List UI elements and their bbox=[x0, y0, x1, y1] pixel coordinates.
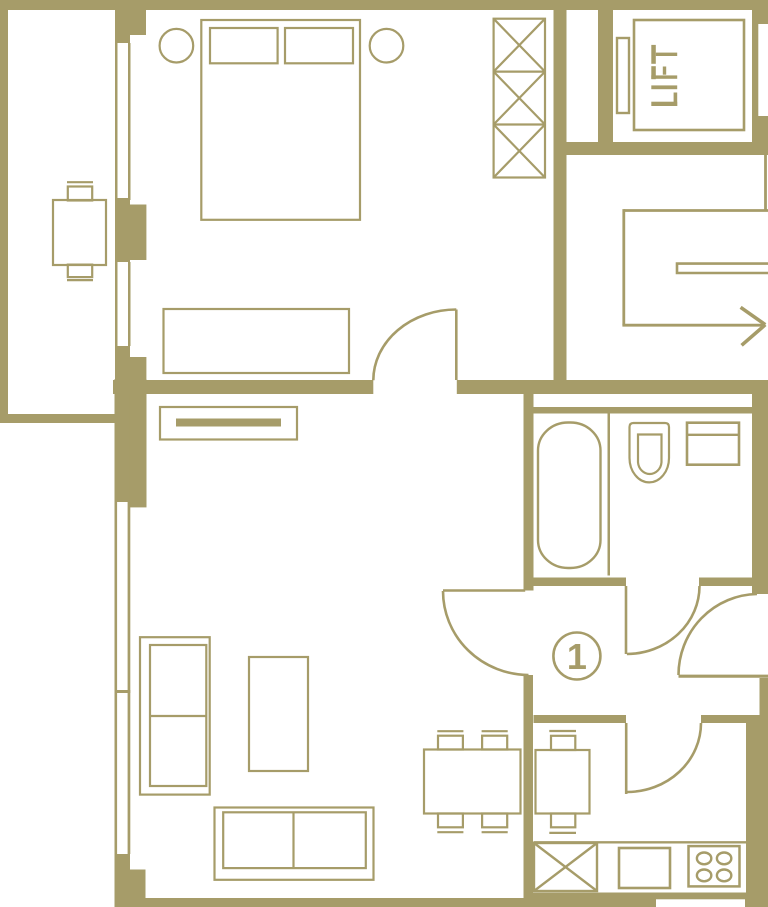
svg-text:1: 1 bbox=[567, 636, 587, 677]
